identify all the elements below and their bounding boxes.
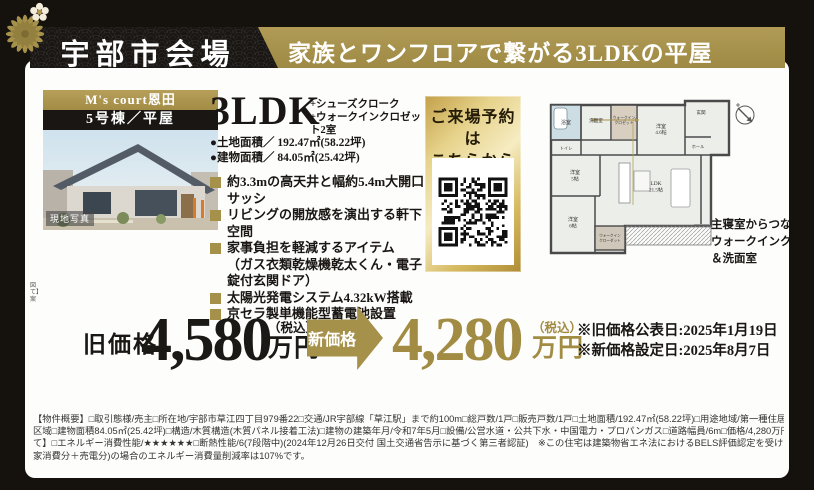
room-label-bedroom6: 洋室 [568, 216, 578, 223]
feature-item: リビングの開放感を演出する軒下空間 [210, 207, 425, 240]
qr-panel [432, 158, 514, 265]
bullet-icon [210, 293, 221, 304]
svg-text:クローゼット: クローゼット [599, 238, 621, 243]
room-label-toilet: トイレ [560, 146, 573, 151]
bullet-icon [210, 177, 221, 188]
feature-item: 約3.3mの高天井と幅約5.4m大開口サッシ [210, 174, 425, 207]
unit-band: 5号棟／平屋 [43, 110, 218, 130]
price-note-new: ※新価格設定日:2025年8月7日 [577, 342, 778, 362]
flyer-stage: 宇部市会場 家族とワンフロアで繋がる3LDKの平屋 M's court恩田 5号… [0, 0, 814, 490]
svg-text:5帖: 5帖 [571, 176, 579, 183]
flyer-card: M's court恩田 5号棟／平屋 [25, 60, 789, 478]
room-label-ldk: LDK [650, 181, 661, 187]
header-banner: 宇部市会場 家族とワンフロアで繋がる3LDKの平屋 [30, 27, 785, 68]
brand-band: M's court恩田 [43, 90, 218, 110]
room-label-wic1: ウォークイン [613, 115, 636, 120]
feature-item: 太陽光発電システム4.32kW搭載 [210, 290, 425, 307]
qr-code-icon [433, 172, 513, 252]
new-price-value: 4,280 [392, 308, 522, 372]
room-label-bedroom46: 洋室 [656, 123, 666, 130]
svg-text:6帖: 6帖 [569, 223, 577, 230]
layout-suffix: +シューズクローク +ウォークインクロゼット2室 [310, 98, 425, 137]
svg-text:21.5帖: 21.5帖 [649, 187, 663, 194]
room-label-washroom: 洗面室 [589, 117, 603, 124]
room-label-entrance: 玄関 [696, 109, 706, 116]
bullet-icon [210, 243, 221, 254]
plan-annotation: 主寝室からつながる ウォークインクロゼット ＆洗面室 [711, 217, 789, 268]
legal-text: 【物件概要】□取引態様/売主□所在地/宇部市草江四丁目979番22□交通/JR宇… [33, 413, 784, 462]
svg-text:クロゼット: クロゼット [615, 120, 634, 125]
plum-flower-icon [29, 2, 50, 28]
catch-title: 家族とワンフロアで繋がる3LDKの平屋 [288, 34, 713, 68]
spec-block: 3LDK +シューズクローク +ウォークインクロゼット2室 ●土地面積／ 192… [210, 90, 425, 323]
bullet-icon [210, 210, 221, 221]
photo-caption: 現地写真 [46, 211, 94, 226]
old-price-value: 4,580 [141, 308, 271, 372]
site-photo: 現地写真 [43, 130, 218, 230]
area-lines: ●土地面積／ 192.47㎡(58.22坪) ●建物面積／ 84.05㎡(25.… [210, 136, 425, 166]
building-area: ●建物面積／ 84.05㎡(25.42坪) [210, 151, 425, 166]
feature-list: 約3.3mの高天井と幅約5.4m大開口サッシ リビングの開放感を演出する軒下空間… [210, 174, 425, 323]
reservation-box[interactable]: ご来場予約は こちらから [425, 96, 521, 272]
feature-item: 家事負担を軽減するアイテム [210, 240, 425, 257]
room-label-bedroom5: 洋室 [570, 169, 580, 176]
room-label-wic2: ウォークイン [599, 233, 621, 238]
deck [625, 226, 711, 245]
new-price-label: 新価格 [307, 326, 357, 350]
price-notes: ※旧価格公表日:2025年1月19日 ※新価格設定日:2025年8月7日 [577, 322, 778, 361]
compass-icon [736, 103, 754, 124]
venue-title: 宇部市会場 [42, 31, 254, 73]
room-label-hall: ホール [692, 144, 705, 149]
price-note-old: ※旧価格公表日:2025年1月19日 [577, 322, 778, 342]
annotation-connector [694, 224, 709, 225]
margin-fragment: 図 て】 案 [30, 283, 42, 304]
photo-card: M's court恩田 5号棟／平屋 [43, 90, 218, 230]
land-area: ●土地面積／ 192.47㎡(58.22坪) [210, 136, 425, 151]
svg-text:4.6帖: 4.6帖 [655, 129, 666, 136]
feature-item: （ガス衣類乾燥機乾太くん・電子錠付玄関ドア） [210, 257, 425, 290]
room-label-bath: 浴室 [561, 119, 571, 126]
